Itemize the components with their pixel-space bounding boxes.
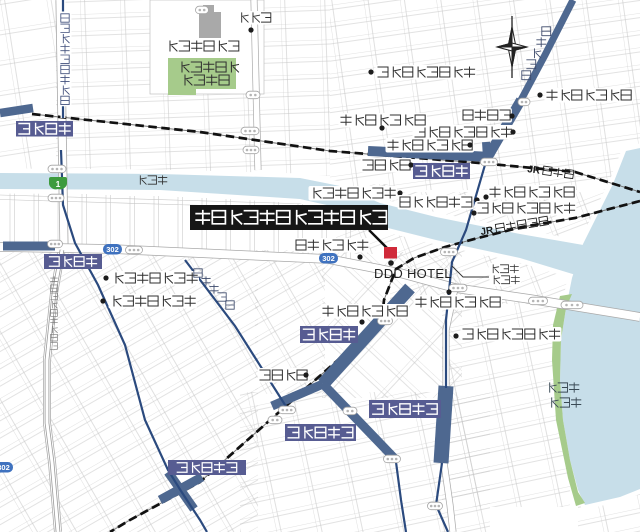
svg-text:302: 302: [0, 463, 10, 472]
svg-text:JR: JR: [527, 164, 542, 177]
svg-text:302: 302: [106, 245, 119, 254]
svg-text:DDD HOTEL: DDD HOTEL: [374, 266, 452, 281]
svg-text:JR: JR: [480, 225, 495, 238]
svg-text:302: 302: [322, 254, 335, 263]
svg-text:1: 1: [56, 179, 61, 189]
